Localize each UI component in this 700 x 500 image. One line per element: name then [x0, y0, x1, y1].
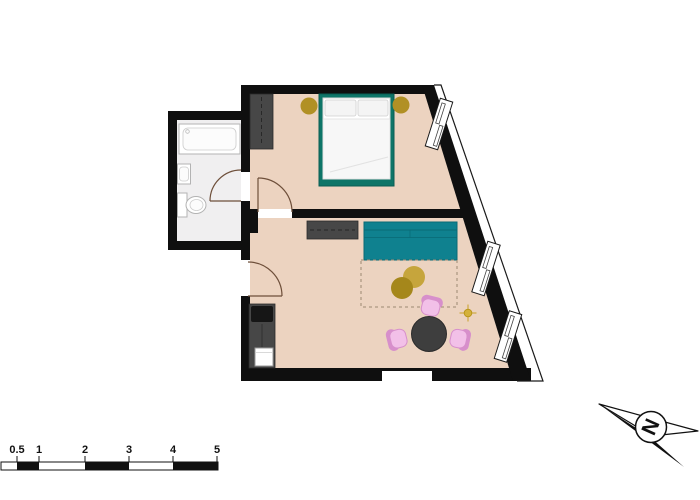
bedside-pouf-right	[393, 97, 410, 114]
entry-door-opening	[241, 260, 250, 296]
scale-label-5: 5	[214, 444, 220, 456]
floor-plan-canvas: 0.5 1 2 3 4 5 N	[0, 0, 700, 500]
north-arrow: N	[599, 404, 698, 467]
bathroom-wall-top	[168, 111, 250, 120]
bedroom-door-opening	[258, 209, 292, 218]
sofa	[364, 222, 457, 260]
sideboard	[307, 221, 358, 239]
pouf-dark	[391, 277, 413, 299]
kitchen-appliance	[251, 306, 273, 322]
kitchen-sink	[255, 348, 273, 366]
pillow-right	[358, 100, 388, 116]
wall-top	[241, 85, 434, 94]
scale-label-1: 1	[36, 444, 42, 456]
duvet	[323, 119, 390, 179]
bathroom-door-opening	[241, 172, 250, 201]
floor-plan-page: 0.5 1 2 3 4 5 N	[0, 0, 700, 500]
divider-wall-stub-left	[250, 209, 258, 218]
kitchen-counter	[249, 304, 275, 368]
divider-wall-return	[250, 218, 258, 233]
bedside-pouf-left	[301, 98, 318, 115]
scale-label-4: 4	[170, 444, 177, 456]
divider-wall	[292, 209, 464, 218]
bathroom-wall-bottom	[168, 241, 250, 250]
dining-table	[412, 317, 447, 352]
scale-label-05: 0.5	[9, 444, 24, 456]
scale-label-3: 3	[126, 444, 132, 456]
scale-label-2: 2	[82, 444, 88, 456]
bathroom-wall-left	[168, 111, 177, 250]
bathtub	[179, 124, 240, 154]
bottom-wall-niche	[382, 371, 432, 381]
pillow-left	[325, 100, 356, 116]
wardrobe	[250, 94, 273, 149]
bathroom-sink	[178, 164, 191, 184]
scale-bar: 0.5 1 2 3 4 5	[1, 444, 220, 470]
bed	[319, 94, 394, 186]
